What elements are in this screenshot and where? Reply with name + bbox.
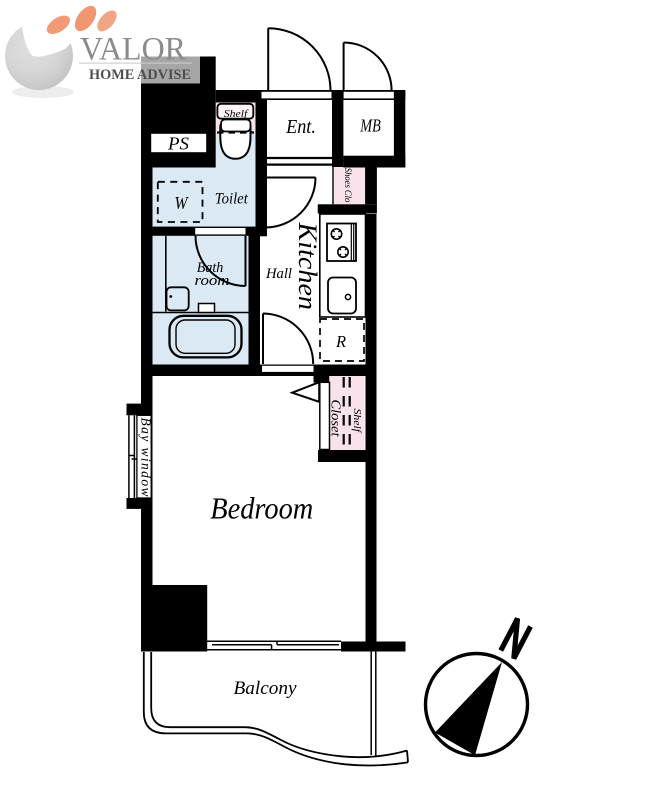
svg-text:VALOR: VALOR xyxy=(80,32,186,68)
svg-text:Toilet: Toilet xyxy=(215,191,249,208)
svg-text:Closet: Closet xyxy=(328,400,343,438)
svg-text:room: room xyxy=(195,273,230,289)
svg-text:Shoes Clo: Shoes Clo xyxy=(342,168,352,203)
svg-text:Ent.: Ent. xyxy=(285,116,316,138)
svg-text:Bedroom: Bedroom xyxy=(210,491,313,526)
svg-text:Balcony: Balcony xyxy=(234,678,298,699)
svg-text:Kitchen: Kitchen xyxy=(293,221,322,310)
svg-text:Bay window: Bay window xyxy=(139,418,154,498)
svg-text:W: W xyxy=(175,193,190,213)
svg-text:Hall: Hall xyxy=(265,266,292,282)
svg-text:PS: PS xyxy=(167,134,189,154)
svg-text:R: R xyxy=(335,332,346,351)
svg-text:Shelf: Shelf xyxy=(224,108,250,120)
svg-text:MB: MB xyxy=(359,115,381,135)
svg-text:HOME ADVISE: HOME ADVISE xyxy=(89,67,191,83)
svg-text:Shelf: Shelf xyxy=(351,409,363,435)
